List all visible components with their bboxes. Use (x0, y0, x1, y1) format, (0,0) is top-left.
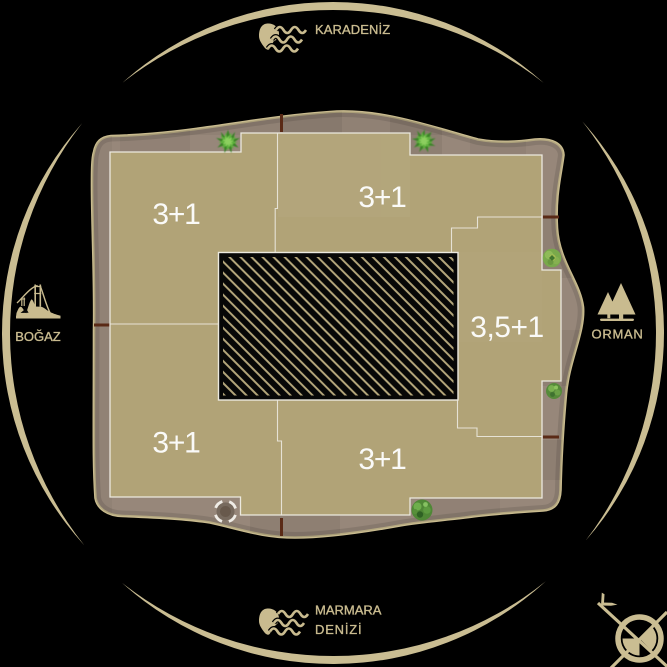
svg-text:3+1: 3+1 (152, 427, 200, 460)
svg-text:3,5+1: 3,5+1 (470, 311, 543, 344)
svg-text:3+1: 3+1 (358, 443, 406, 476)
svg-text:KARADENİZ: KARADENİZ (315, 22, 390, 37)
svg-text:MARMARA: MARMARA (315, 603, 382, 618)
svg-text:DENİZİ: DENİZİ (315, 622, 362, 637)
svg-text:BOĞAZ: BOĞAZ (15, 329, 61, 344)
svg-text:3+1: 3+1 (358, 181, 406, 214)
svg-text:ORMAN: ORMAN (592, 327, 644, 342)
svg-text:3+1: 3+1 (152, 198, 200, 231)
